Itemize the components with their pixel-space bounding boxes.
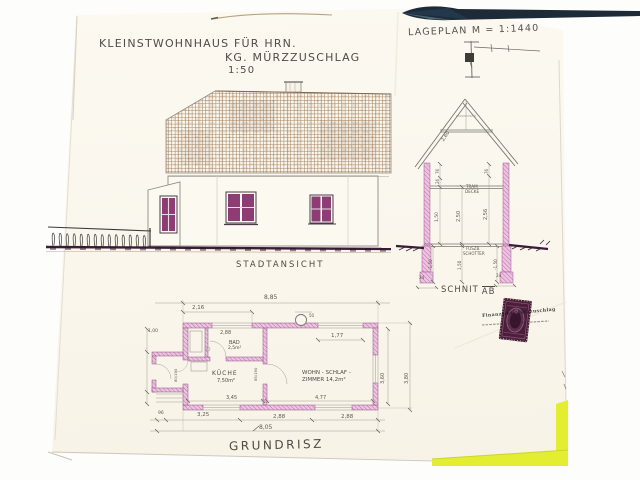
dim-room-height: 2,50	[457, 211, 462, 222]
room-kueche: KÜCHE	[212, 371, 238, 377]
dim-288-a: 2,88	[273, 415, 285, 421]
dim-380: 3,80	[405, 373, 410, 384]
dim-76-left: 76	[436, 169, 440, 174]
plan-chimney	[296, 315, 307, 326]
section-label-ab: AB	[482, 286, 496, 297]
section-wall-left	[424, 163, 430, 246]
label-fuszboden-2: SCHOTTER	[463, 252, 485, 256]
dim-150-left: 1,50	[436, 212, 441, 222]
dim-top-total: 8,85	[264, 295, 277, 301]
room-bad-area: 2,5m²	[228, 347, 241, 352]
label-tramdecke-2: DECKE	[465, 190, 479, 194]
plan-label: GRUNDRISZ	[229, 438, 324, 452]
site-plan-sketch	[464, 41, 540, 78]
dim-found-left: -1,50	[429, 259, 433, 270]
dim-345: 3,45	[226, 396, 237, 401]
main-wall	[168, 176, 378, 246]
dim-76-right: 76	[485, 169, 489, 174]
room-wohn-line1: WOHN - SCHLAF -	[302, 371, 351, 377]
room-kueche-area: 7,50m²	[217, 379, 235, 384]
elevation-drawing	[46, 82, 391, 253]
dim-26-left: 26	[436, 179, 440, 184]
dim-216: 2,16	[192, 306, 204, 312]
dim-50: 50	[309, 314, 314, 318]
dim-100: 1,00	[148, 330, 158, 335]
dim-288-top: 2,88	[220, 331, 231, 336]
annex-window	[160, 196, 177, 233]
drawing-title-location: KG. MÜRZZUSCHLAG	[225, 52, 360, 63]
yellow-backing-right	[556, 400, 568, 453]
dim-256-right: 2,56	[484, 209, 489, 220]
room-wohn-line2: ZIMMER 14,2m²	[302, 378, 346, 384]
fence	[48, 227, 151, 248]
dim-477: 4,77	[315, 396, 326, 401]
elevation-label: STADTANSICHT	[236, 261, 324, 270]
section-label-word: SCHNIT	[441, 286, 479, 295]
door-size-1: 85/190	[254, 368, 258, 381]
section-wall-right	[503, 163, 509, 246]
drawing-linework	[0, 0, 640, 480]
dim-base-right: 24	[496, 274, 501, 278]
dim-325: 3,25	[197, 413, 209, 419]
dim-found-mid: 1,50	[458, 261, 462, 270]
drawing-scale: 1:50	[228, 66, 255, 76]
dim-bottom-total: 8,05	[259, 425, 272, 431]
drawing-title: KLEINSTWOHNHAUS FÜR HRN.	[99, 38, 297, 49]
section-label: SCHNIT AB	[441, 286, 495, 297]
dim-288-b: 2,88	[341, 415, 353, 421]
dim-96: 96	[158, 412, 164, 417]
site-house-square	[465, 53, 474, 62]
dim-360: 3,60	[381, 373, 386, 384]
door-size-2: 80/190	[174, 369, 178, 382]
chimney	[284, 82, 303, 92]
dim-177: 1,77	[331, 334, 343, 340]
dim-base-left: 24	[419, 276, 424, 280]
revenue-stamp	[499, 298, 532, 342]
dim-found-right: -1,50	[494, 259, 498, 270]
scanned-architectural-drawing: KLEINSTWOHNHAUS FÜR HRN. KG. MÜRZZUSCHLA…	[0, 0, 640, 480]
